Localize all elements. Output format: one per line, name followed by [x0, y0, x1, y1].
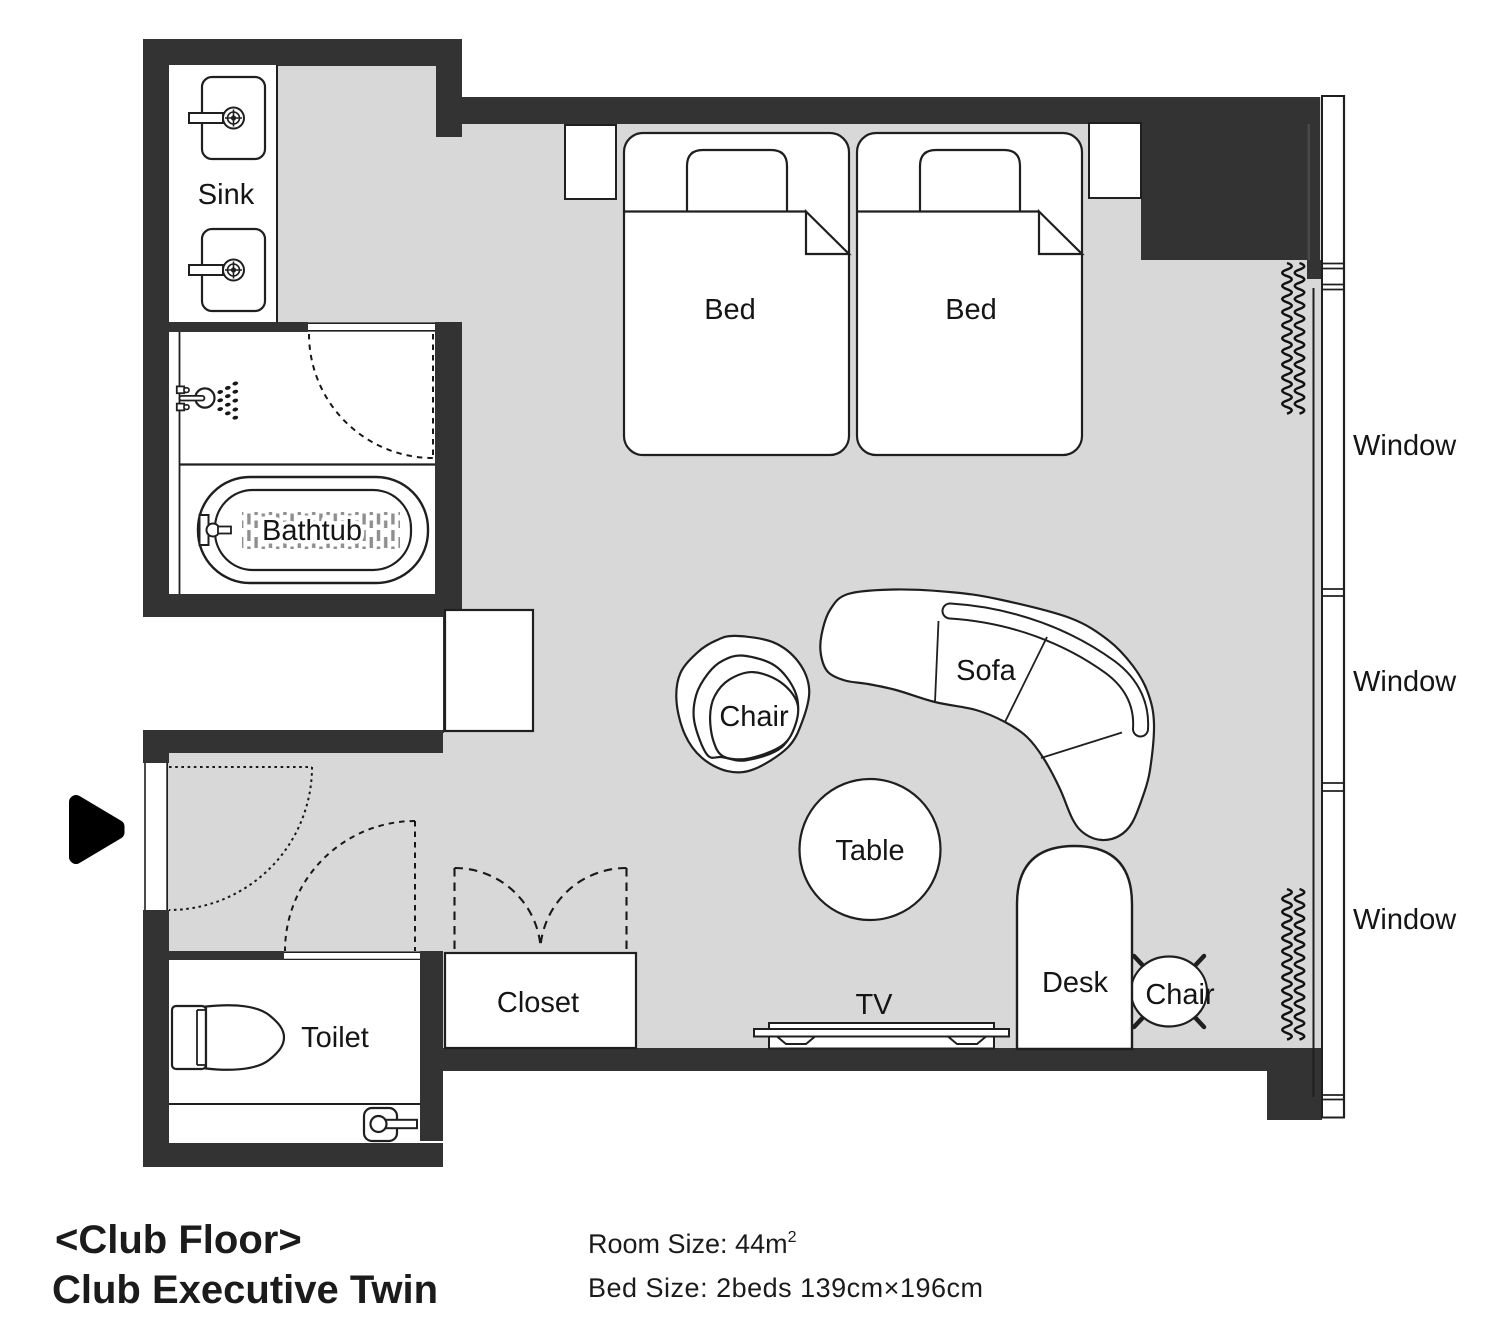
svg-text:TV: TV	[855, 989, 893, 1021]
svg-text:<Club Floor>: <Club Floor>	[55, 1218, 302, 1262]
svg-text:Toilet: Toilet	[301, 1022, 369, 1054]
svg-text:Room Size: 44m2: Room Size: 44m2	[588, 1229, 797, 1259]
svg-text:Bed Size: 2beds 139cm×196cm: Bed Size: 2beds 139cm×196cm	[588, 1273, 983, 1303]
svg-text:Table: Table	[835, 835, 904, 867]
svg-text:Sink: Sink	[198, 179, 255, 211]
svg-text:Bathtub: Bathtub	[262, 515, 362, 547]
svg-text:Window: Window	[1353, 904, 1457, 936]
svg-text:Chair: Chair	[1145, 979, 1215, 1011]
svg-text:Bed: Bed	[945, 294, 997, 326]
svg-text:Desk: Desk	[1042, 967, 1109, 999]
svg-text:Bed: Bed	[704, 294, 756, 326]
svg-text:Window: Window	[1353, 666, 1457, 698]
svg-text:Sofa: Sofa	[956, 655, 1017, 687]
svg-text:Closet: Closet	[497, 987, 579, 1019]
svg-text:Chair: Chair	[719, 701, 789, 733]
svg-text:Window: Window	[1353, 430, 1457, 462]
svg-text:Club Executive Twin: Club Executive Twin	[52, 1268, 438, 1312]
